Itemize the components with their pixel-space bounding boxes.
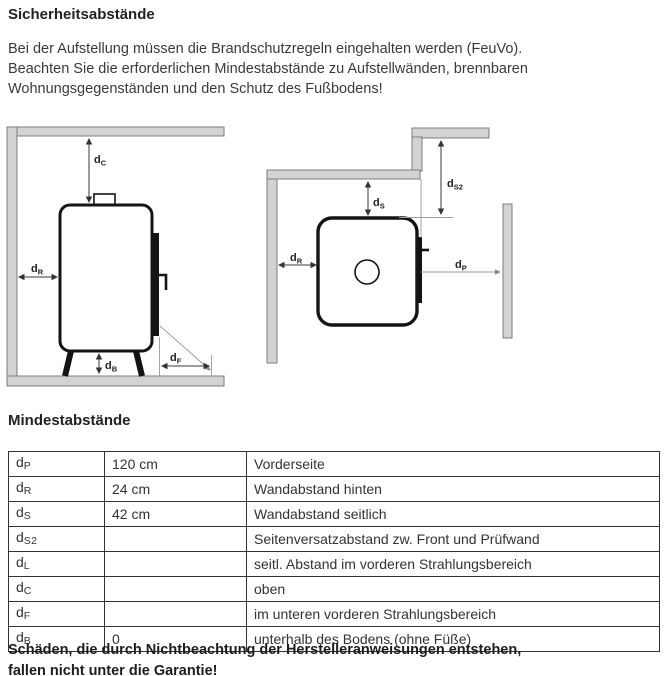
side-wall-top [267,170,420,179]
top-view-diagram: dS dS2 dR dP [267,128,512,363]
value-cell [105,527,247,552]
value-cell [105,602,247,627]
description-cell: Vorderseite [247,452,660,477]
value-cell: 42 cm [105,502,247,527]
table-row: dC oben [9,577,660,602]
warranty-warning: Schäden, die durch Nichtbeachtung der He… [8,640,521,676]
value-cell [105,577,247,602]
symbol-cell: dF [9,602,105,627]
description-cell: Wandabstand hinten [247,477,660,502]
table-row: dR 24 cm Wandabstand hinten [9,477,660,502]
dc-label: dC [94,154,107,168]
dr-label-side: dR [31,263,44,277]
floor [7,376,224,386]
pruefwand [503,204,512,338]
symbol-cell: dS [9,502,105,527]
ceiling-wall [7,127,224,136]
warranty-warning-line: fallen nicht unter die Garantie! [8,661,521,676]
clearance-diagrams: dC dR dB dF dS [0,118,670,396]
description-cell: im unteren vorderen Strahlungsbereich [247,602,660,627]
df-label: dF [170,352,182,366]
description-cell: Wandabstand seitlich [247,502,660,527]
dr-label-top: dR [290,252,303,266]
clearance-diagram-svg: dC dR dB dF dS [0,118,670,396]
intro-line: Wohnungsgegenständen und den Schutz des … [8,79,528,99]
ds2-label: dS2 [447,178,463,192]
warranty-warning-line: Schäden, die durch Nichtbeachtung der He… [8,640,521,661]
table-row: dF im unteren vorderen Strahlungsbereich [9,602,660,627]
side-view-diagram: dC dR dB dF [7,127,224,386]
value-cell: 24 cm [105,477,247,502]
symbol-cell: dP [9,452,105,477]
radiation-diagonal-line [160,326,210,370]
db-label: dB [105,360,118,374]
description-cell: Seitenversatzabstand zw. Front und Prüfw… [247,527,660,552]
dp-label: dP [455,259,467,273]
value-cell [105,552,247,577]
intro-line: Bei der Aufstellung müssen die Brandschu… [8,39,528,59]
table-row: dS 42 cm Wandabstand seitlich [9,502,660,527]
symbol-cell: dC [9,577,105,602]
table-row: dP 120 cm Vorderseite [9,452,660,477]
flue-outlet-circle [355,260,379,284]
page-title: Sicherheitsabstände [8,6,155,23]
flue-connector [94,194,115,205]
table-row: dL seitl. Abstand im vorderen Strahlungs… [9,552,660,577]
stove-side-view [60,205,152,351]
door-handle-side [159,275,166,290]
offset-wall-top [412,128,489,138]
symbol-cell: dL [9,552,105,577]
table-row: dS2 Seitenversatzabstand zw. Front und P… [9,527,660,552]
rear-wall [7,127,17,377]
stove-door-side [152,233,159,336]
intro-paragraph: Bei der Aufstellung müssen die Brandschu… [8,39,528,99]
stove-door-top [416,237,422,303]
value-cell: 120 cm [105,452,247,477]
section-heading: Mindestabstände [8,412,131,429]
symbol-cell: dR [9,477,105,502]
stove-leg-left [65,351,71,376]
manual-page: Sicherheitsabstände Bei der Aufstellung … [0,0,670,676]
symbol-cell: dS2 [9,527,105,552]
description-cell: oben [247,577,660,602]
rear-wall-top [267,179,277,363]
stove-leg-right [136,351,142,376]
min-distance-table: dP 120 cm Vorderseite dR 24 cm Wandabsta… [8,451,660,652]
ds-label: dS [373,197,385,211]
offset-wall-connector [412,137,422,171]
intro-line: Beachten Sie die erforderlichen Mindesta… [8,59,528,79]
description-cell: seitl. Abstand im vorderen Strahlungsber… [247,552,660,577]
